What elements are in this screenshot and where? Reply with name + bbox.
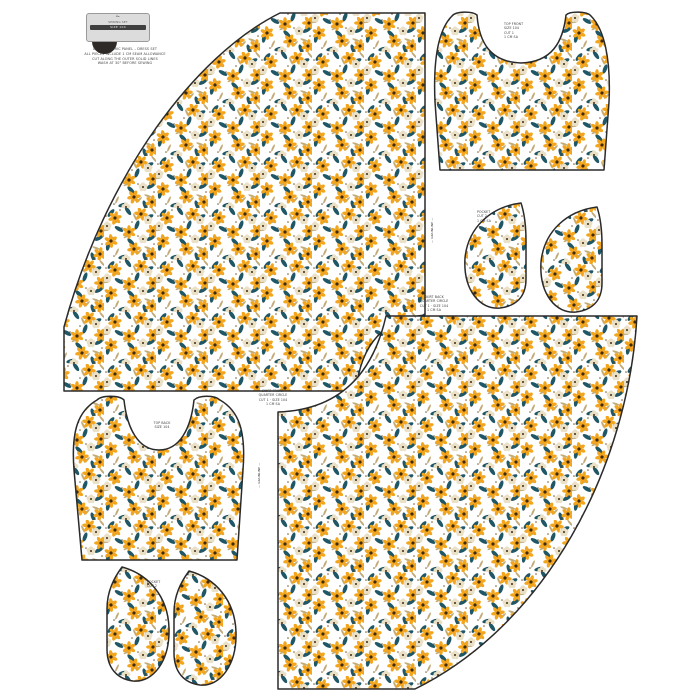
pattern-pieces-layer bbox=[0, 0, 700, 700]
brand-tag-band: SIZE 104 bbox=[90, 25, 146, 30]
top-bodice-label: TOP FRONT SIZE 104 CUT 1 1 CM SA bbox=[504, 22, 523, 39]
top-skirt-label: SKIRT FRONT QUARTER CIRCLE CUT 1 · SIZE … bbox=[246, 389, 300, 406]
pocket-piece-right-1 bbox=[465, 203, 526, 308]
panel-fine-print: DIGITAL FABRIC PANEL – DRESS SET ALL PIE… bbox=[66, 47, 184, 66]
sewing-panel-canvas: ✁ SEWING SET SIZE 104 DIGITAL FABRIC PAN… bbox=[0, 0, 700, 700]
skirt-piece-top-left bbox=[64, 13, 425, 391]
grainline-label-left: — GRAINLINE — bbox=[257, 463, 261, 488]
bottom-pockets-label: POCKET CUT 2 bbox=[147, 580, 160, 589]
brand-tag-line: SEWING SET bbox=[108, 20, 128, 24]
right-pockets-label: POCKET CUT 2 1 CM SA bbox=[477, 210, 491, 223]
grainline-label-right: — GRAINLINE — bbox=[430, 218, 434, 243]
pocket-piece-bottom-2 bbox=[174, 571, 236, 685]
pocket-piece-right-2 bbox=[541, 207, 602, 312]
brand-tag: ✁ SEWING SET SIZE 104 bbox=[86, 13, 150, 42]
bottom-bodice-label: TOP BACK SIZE 104 bbox=[148, 421, 176, 430]
bottom-skirt-label: SKIRT BACK QUARTER CIRCLE CUT 1 · SIZE 1… bbox=[406, 295, 462, 312]
